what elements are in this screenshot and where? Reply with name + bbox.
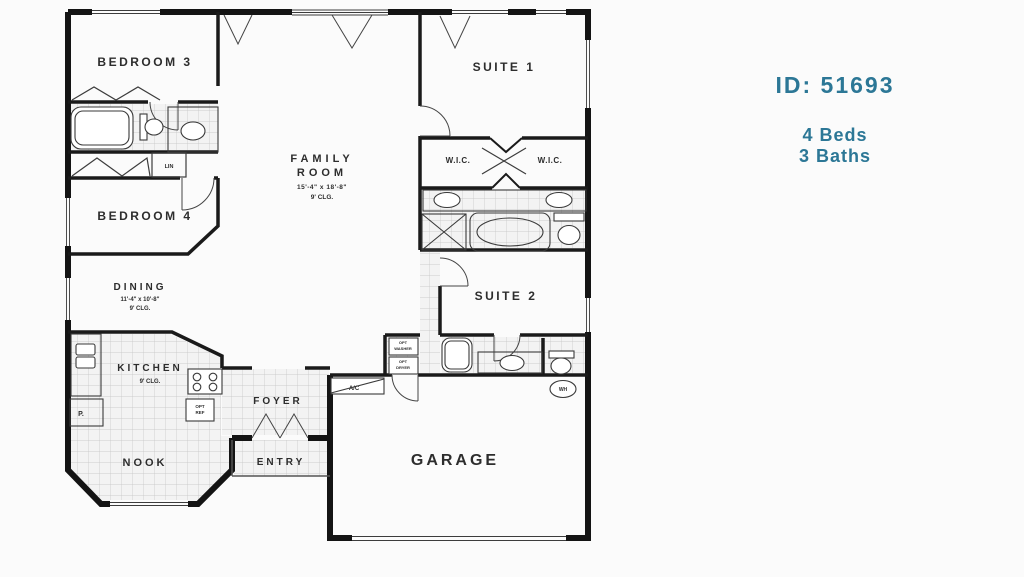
label-bedroom3: BEDROOM 3 <box>97 55 192 69</box>
label-dining-dims: 11'-4" x 10'-8" <box>121 297 160 303</box>
label-garage: GARAGE <box>411 452 499 469</box>
master-toilet <box>558 226 580 245</box>
label-dryer-2: DRYER <box>396 365 410 370</box>
wic-funnel-walls <box>490 138 522 188</box>
suite2-sink <box>500 356 524 371</box>
master-sink-left <box>434 193 460 208</box>
label-foyer: FOYER <box>253 396 302 407</box>
baths-count: 3 Baths <box>735 146 935 167</box>
master-toilet-tank <box>554 213 584 221</box>
bathtub-fixture <box>71 107 133 149</box>
label-washer-2: WASHER <box>394 346 412 351</box>
label-washer-1: OPT <box>399 340 408 345</box>
beds-count: 4 Beds <box>735 125 935 146</box>
label-wic-right: W.I.C. <box>538 156 563 165</box>
label-dryer-1: OPT <box>399 359 408 364</box>
suite2-toilet-tank <box>549 351 574 358</box>
label-family-clg: 9' CLG. <box>311 194 334 201</box>
label-wic-left: W.I.C. <box>446 156 471 165</box>
label-opt-ref-2: REF <box>196 410 205 415</box>
label-lin: LIN <box>165 164 174 170</box>
listing-info-panel: ID: 51693 4 Beds 3 Baths <box>735 72 935 167</box>
label-suite2: SUITE 2 <box>475 289 538 303</box>
suite2-toilet <box>551 358 571 374</box>
kitchen-sink-2 <box>76 357 95 368</box>
kitchen-sink-1 <box>76 344 95 355</box>
master-sink-right <box>546 193 572 208</box>
label-family-dims: 15'-4" x 18'-8" <box>297 184 347 191</box>
label-family-1: FAMILY <box>290 153 353 165</box>
label-ac: A/C <box>349 386 360 392</box>
label-suite1: SUITE 1 <box>473 60 536 74</box>
label-nook: NOOK <box>123 457 168 469</box>
label-wh: WH <box>559 387 568 393</box>
label-opt-ref-1: OPT <box>195 404 205 409</box>
label-entry: ENTRY <box>257 457 306 468</box>
toilet-fixture <box>145 119 163 135</box>
hall-floor <box>420 252 440 373</box>
label-kitchen-clg: 9' CLG. <box>140 379 161 385</box>
listing-id: ID: 51693 <box>735 72 935 99</box>
range-fixture <box>188 369 222 394</box>
label-kitchen: KITCHEN <box>117 363 182 374</box>
floorplan-page: BEDROOM 3 SUITE 1 W.I.C. W.I.C. BEDROOM … <box>0 0 1024 577</box>
label-family-2: ROOM <box>297 167 347 179</box>
sink-fixture <box>181 122 205 140</box>
garage-door <box>352 534 566 543</box>
label-dining: DINING <box>114 282 167 293</box>
label-dining-clg: 9' CLG. <box>130 306 151 312</box>
label-bedroom4: BEDROOM 4 <box>97 209 192 223</box>
label-pantry: P. <box>78 411 84 418</box>
